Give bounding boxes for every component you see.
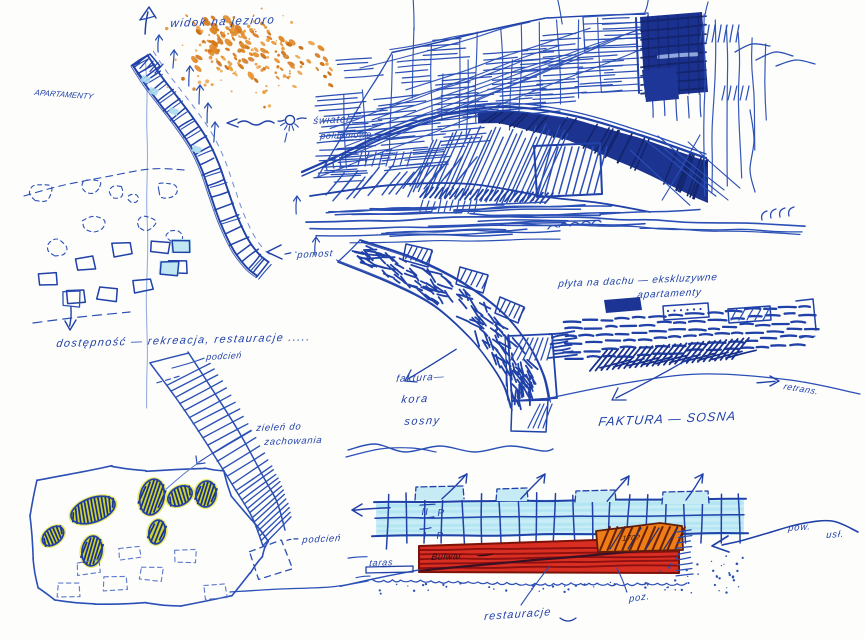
svg-text:170?: 170? <box>622 533 641 543</box>
svg-text:podcień: podcień <box>301 533 342 546</box>
svg-text:sosny: sosny <box>404 415 442 428</box>
svg-text:kora: kora <box>401 393 430 406</box>
svg-text:podcień: podcień <box>205 350 243 362</box>
svg-text:pow.: pow. <box>787 521 812 534</box>
svg-text:pomost: pomost <box>296 248 334 261</box>
svg-text:zieleń do: zieleń do <box>255 421 303 434</box>
svg-text:Bulwar: Bulwar <box>431 551 463 562</box>
svg-text:zachowania: zachowania <box>263 435 323 448</box>
svg-text:usł.: usł. <box>826 529 845 541</box>
